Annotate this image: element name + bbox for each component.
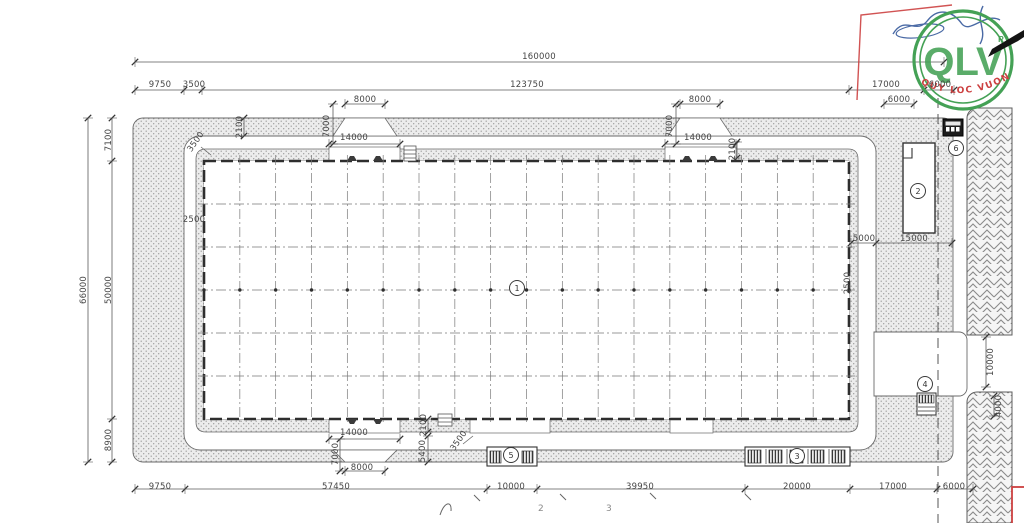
red-stamp-box-partial [1012, 487, 1024, 523]
cutoff-marks [440, 493, 751, 515]
main-building [198, 146, 855, 426]
right-road [967, 108, 1012, 523]
stamp-letters: QLV [923, 40, 1003, 84]
aux-building [903, 143, 935, 233]
shelter-small [487, 447, 537, 466]
stamp: QLV R QUY LOC VUONG [0, 0, 1024, 109]
gate-structure [917, 393, 936, 415]
entrance-corridor [874, 332, 967, 396]
site-plan-drawing: QLV R QUY LOC VUONG 16000097503500123750… [0, 0, 1024, 523]
shelter-long [745, 447, 850, 466]
kiosk [943, 119, 963, 136]
plan-geometry: QLV R QUY LOC VUONG [0, 0, 1024, 523]
